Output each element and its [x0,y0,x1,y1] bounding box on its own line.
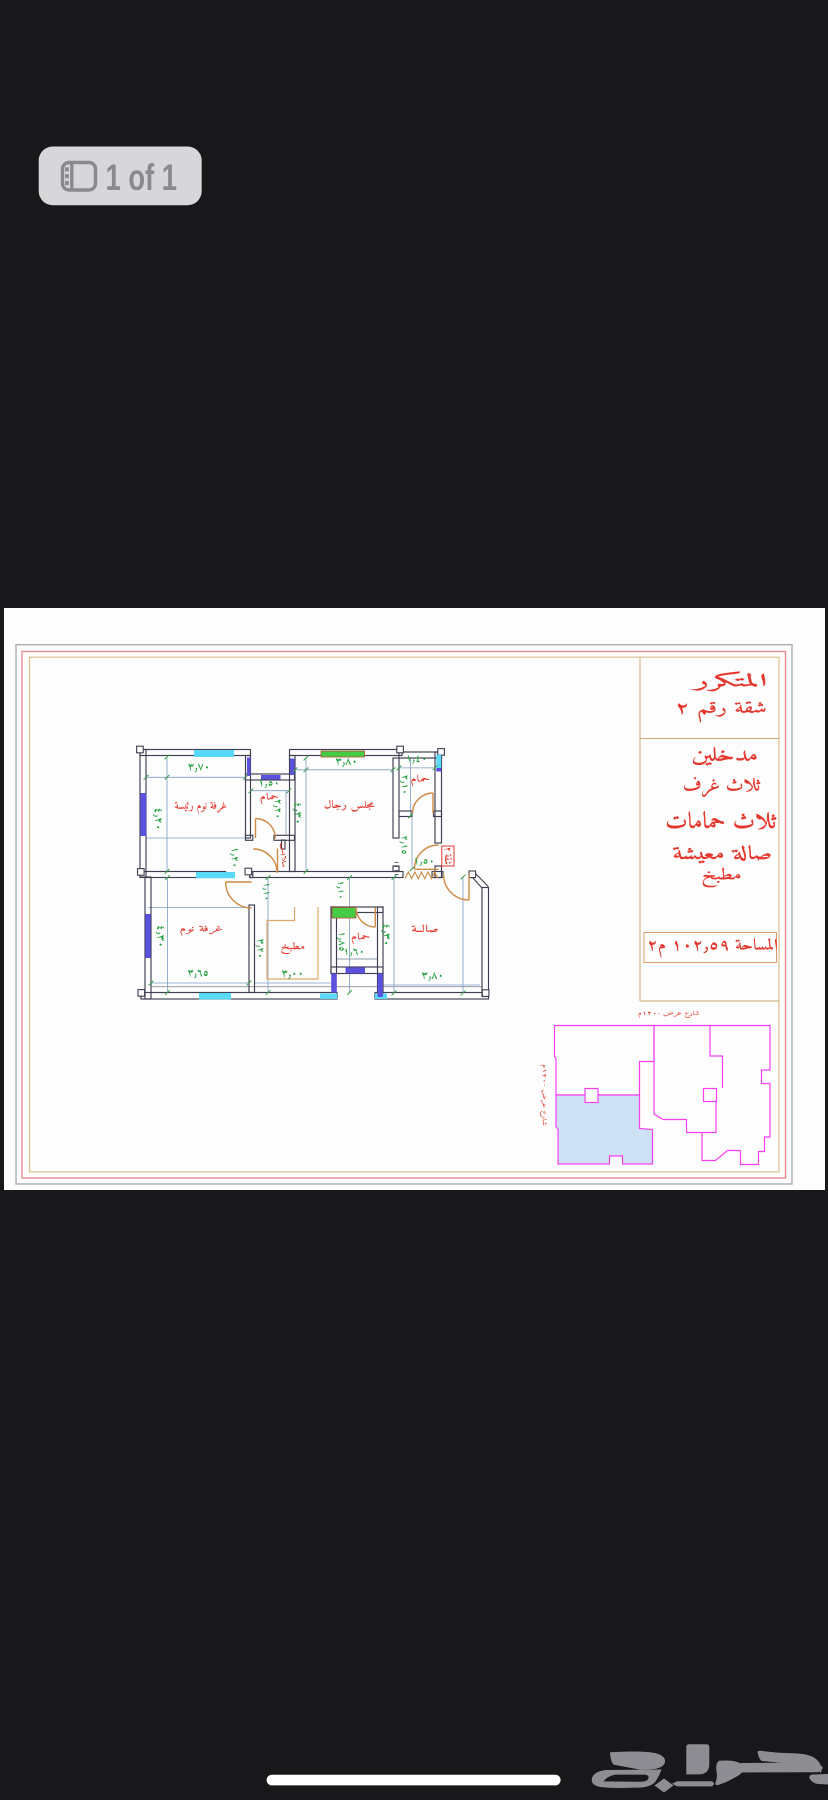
svg-text:1 of 1: 1 of 1 [106,157,178,198]
